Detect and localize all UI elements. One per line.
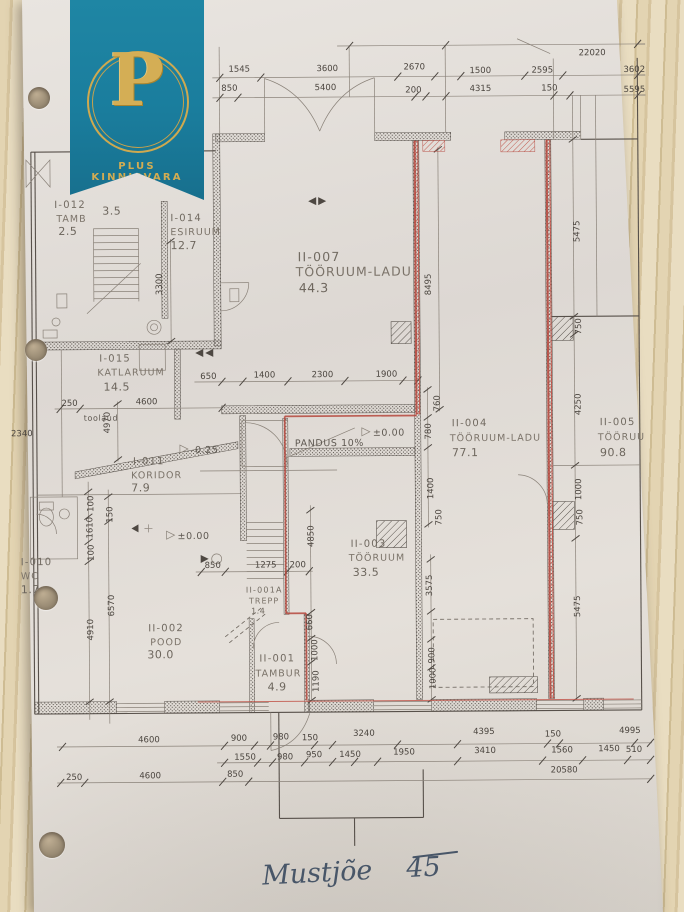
logo-p-letter: P bbox=[70, 44, 204, 116]
dim-label: 660 bbox=[305, 614, 315, 630]
room-area-label: 2.5 bbox=[58, 225, 77, 238]
plus-kinnisvara-logo: P PLUS KINNISVARA bbox=[70, 0, 204, 202]
room-name-label: KORIDOR bbox=[131, 470, 182, 481]
dim-label: 5475 bbox=[573, 595, 583, 617]
room-id-label: I-015 bbox=[99, 353, 131, 364]
walls bbox=[31, 131, 604, 714]
punch-hole bbox=[34, 586, 58, 610]
bench-label: toolaud bbox=[84, 414, 118, 423]
dim-label: 250 bbox=[61, 399, 77, 409]
room-name-label: TAMB bbox=[55, 214, 86, 225]
dim-label: 6570 bbox=[107, 595, 117, 617]
punch-hole bbox=[25, 339, 47, 361]
room-name-label: POOD bbox=[150, 637, 182, 648]
photo-of-floor-plan: I-012 3.5 TAMB 2.5 I-014 ESIRUUM 12.7 I-… bbox=[0, 0, 684, 912]
dim-label: 2670 bbox=[403, 62, 425, 72]
level-label: -0.25 bbox=[191, 445, 219, 456]
dim-label: 1500 bbox=[469, 66, 491, 76]
room-name-label: KATLARUUM bbox=[97, 367, 164, 378]
dim-label: 1610 bbox=[85, 517, 95, 539]
room-id-label: II-004 bbox=[452, 418, 488, 429]
dim-label: 3410 bbox=[474, 746, 496, 756]
room-area-label: 77.1 bbox=[452, 446, 479, 459]
dim-label: 2595 bbox=[531, 66, 553, 76]
room-id-label: I-012 bbox=[54, 200, 86, 211]
dim-label: 5400 bbox=[315, 83, 337, 93]
dim-label: 4600 bbox=[136, 397, 158, 407]
dim-label: 4995 bbox=[619, 726, 641, 736]
dim-label: 4315 bbox=[470, 84, 492, 94]
room-id-label: II-001 bbox=[259, 653, 295, 664]
dim-label: 200 bbox=[405, 85, 421, 95]
dim-label: 850 bbox=[227, 770, 243, 780]
dim-label: 4970 bbox=[103, 412, 113, 434]
dim-label: 750 bbox=[575, 509, 585, 525]
room-name-label: ESIRUUM bbox=[170, 227, 221, 238]
dim-label: 850 bbox=[221, 84, 237, 94]
dim-label: 150 bbox=[545, 729, 561, 739]
level-label: ±0.00 bbox=[373, 428, 405, 439]
dim-label: 3300 bbox=[155, 273, 165, 295]
dim-label: 650 bbox=[200, 372, 216, 382]
dim-label: 2340 bbox=[11, 429, 33, 439]
dim-label: 900 bbox=[231, 734, 247, 744]
room-id-label: II-003 bbox=[351, 539, 387, 550]
dim-label: 100 bbox=[87, 545, 97, 561]
dim-label: 4250 bbox=[574, 393, 584, 415]
dim-label: 4910 bbox=[86, 619, 96, 641]
dim-label: 3602 bbox=[623, 65, 645, 75]
dim-label: 4395 bbox=[473, 727, 495, 737]
dim-label: 250 bbox=[66, 773, 82, 783]
dim-label: 1950 bbox=[393, 747, 415, 757]
dim-label: 8495 bbox=[424, 274, 434, 296]
room-name-label: TÖÖRUUM bbox=[348, 553, 406, 564]
room-area-label: 7.9 bbox=[131, 481, 150, 494]
dim-label: 2300 bbox=[312, 370, 334, 380]
dim-label: 1550 bbox=[234, 753, 256, 763]
dim-label: 780 bbox=[424, 423, 434, 439]
dim-label: 1190 bbox=[311, 670, 321, 692]
dim-label: 850 bbox=[205, 561, 221, 571]
dim-label: 1000 bbox=[574, 478, 584, 500]
dim-label: 1450 bbox=[339, 750, 361, 760]
dim-label: 4600 bbox=[139, 771, 161, 781]
dim-label: 1400 bbox=[254, 370, 276, 380]
room-id-label: II-005 bbox=[600, 417, 636, 428]
room-area-label: 30.0 bbox=[147, 648, 174, 661]
dim-label: 1900 bbox=[376, 370, 398, 380]
dim-label: 5475 bbox=[572, 220, 582, 242]
dim-label: 950 bbox=[306, 750, 322, 760]
level-label: ±0.00 bbox=[177, 531, 209, 542]
dim-label: 22020 bbox=[579, 48, 606, 58]
dim-label: 20580 bbox=[551, 765, 578, 775]
dim-label: 3240 bbox=[353, 729, 375, 739]
dim-label: 900 bbox=[427, 647, 437, 663]
room-name-label: WC bbox=[21, 571, 39, 582]
dim-label: 1560 bbox=[551, 745, 573, 755]
room-area-label: 33.5 bbox=[353, 566, 380, 579]
dim-label: 1545 bbox=[228, 65, 250, 75]
dim-label: 3575 bbox=[425, 575, 435, 597]
dim-label: 5595 bbox=[624, 85, 646, 95]
dim-label: 4600 bbox=[138, 735, 160, 745]
room-area-label: 14.5 bbox=[103, 380, 130, 393]
dim-label: 150 bbox=[302, 733, 318, 743]
room-name-label: TAMBUR bbox=[254, 668, 301, 679]
dim-label: 1275 bbox=[255, 560, 277, 570]
room-area-label: 12.7 bbox=[170, 239, 197, 252]
street-name-handwriting: Mustjõe bbox=[261, 855, 373, 892]
staircase-main bbox=[86, 228, 141, 313]
room-id-label: II-002 bbox=[148, 623, 184, 634]
room-id-label: I-010 bbox=[21, 557, 53, 568]
dim-label: 4850 bbox=[306, 525, 316, 547]
dim-label: 510 bbox=[626, 745, 642, 755]
room-id-label: II-007 bbox=[298, 249, 341, 264]
dim-label: 750 bbox=[574, 318, 584, 334]
house-number-handwriting: 45 bbox=[405, 851, 441, 884]
room-name-label: TÖÖRUUM-LADU bbox=[295, 262, 412, 279]
dim-label: 760 bbox=[433, 395, 443, 411]
hatched-wall-blocks bbox=[375, 316, 576, 693]
room-area-label: 90.8 bbox=[600, 446, 627, 459]
dim-label: 980 bbox=[277, 752, 293, 762]
room-name-label: TÖÖRUU bbox=[597, 432, 645, 443]
room-name-label: TÖÖRUUM-LADU bbox=[449, 433, 541, 445]
pandus-label: PANDUS 10% bbox=[295, 438, 364, 449]
punch-hole bbox=[39, 832, 65, 858]
dim-label: 750 bbox=[434, 509, 444, 525]
room-area-label: 3.5 bbox=[102, 205, 121, 218]
dim-label: 1450 bbox=[598, 744, 620, 754]
dim-label: 100 bbox=[86, 496, 96, 512]
dim-label: 150 bbox=[105, 506, 115, 522]
room-id-label: I-011 bbox=[133, 456, 165, 467]
room-id-label: I-014 bbox=[170, 213, 202, 224]
punch-hole bbox=[28, 87, 50, 109]
dim-label: 1000 bbox=[310, 639, 320, 661]
room-area-label: 4.9 bbox=[268, 680, 287, 693]
dim-label: 150 bbox=[541, 83, 557, 93]
dim-label: 1400 bbox=[426, 478, 436, 500]
room-area-label: 1.4 bbox=[251, 607, 265, 616]
room-id-label: II-001A bbox=[246, 585, 283, 594]
room-area-label: 44.3 bbox=[299, 280, 329, 295]
dim-label: 980 bbox=[273, 732, 289, 742]
dim-label: 200 bbox=[290, 560, 306, 570]
dim-label: 3600 bbox=[316, 64, 338, 74]
dim-label: 1000 bbox=[428, 667, 438, 689]
room-name-label: TREPP bbox=[248, 596, 279, 605]
